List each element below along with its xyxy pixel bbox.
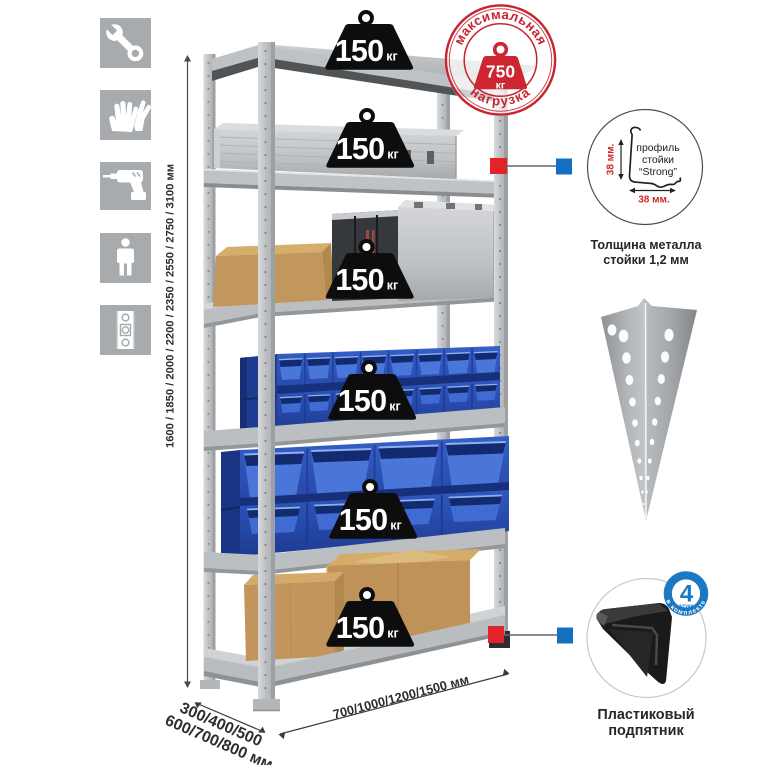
svg-text:38 мм.: 38 мм. <box>606 144 617 176</box>
svg-text:подпятник: подпятник <box>608 723 684 739</box>
svg-text:“Strong”: “Strong” <box>639 166 677 178</box>
svg-text:стойки 1,2 мм: стойки 1,2 мм <box>603 253 689 267</box>
svg-text:38 мм.: 38 мм. <box>638 195 670 206</box>
svg-text:штуки: штуки <box>678 603 693 609</box>
svg-text:Пластиковый: Пластиковый <box>597 707 694 723</box>
svg-text:Толщина металла: Толщина металла <box>590 238 702 252</box>
svg-text:1600 / 1850 / 2000 / 2200 / 23: 1600 / 1850 / 2000 / 2200 / 2350 / 2550 … <box>165 164 177 448</box>
svg-text:профиль: профиль <box>636 142 680 154</box>
svg-text:стойки: стойки <box>642 154 674 166</box>
svg-text:кг: кг <box>496 80 506 92</box>
svg-text:750: 750 <box>486 62 515 82</box>
